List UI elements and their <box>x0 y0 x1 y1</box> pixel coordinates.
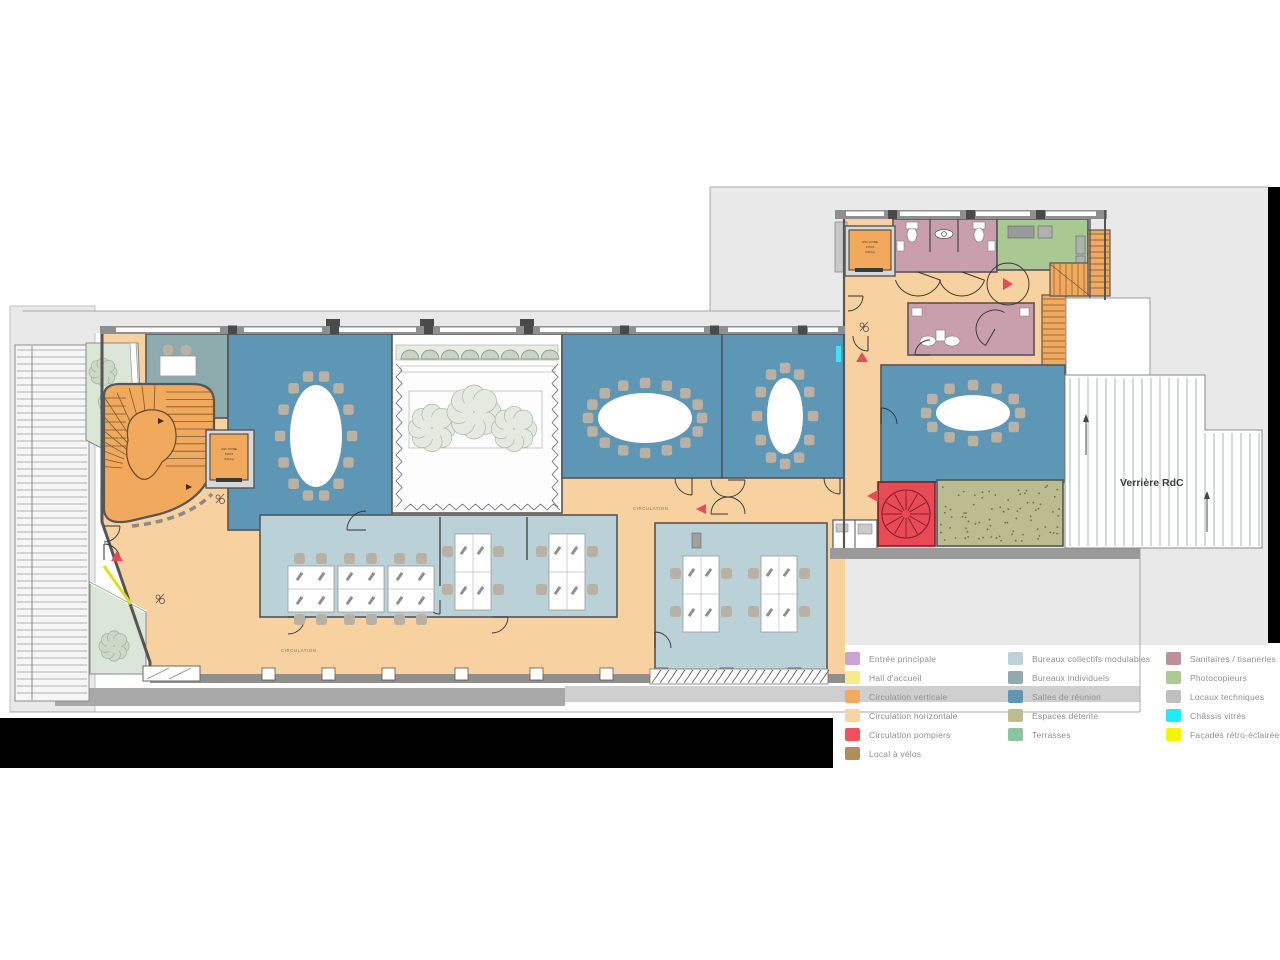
chair <box>721 568 732 579</box>
svg-text:630 kg: 630 kg <box>224 457 234 461</box>
legend-label: Bureaux collectifs modulables <box>1032 654 1150 664</box>
chair <box>536 546 547 557</box>
chair <box>303 371 314 382</box>
chair <box>670 568 681 579</box>
window-strip <box>244 328 322 333</box>
legend-item: Façades rétro-éclairées <box>1166 725 1280 744</box>
chair <box>766 369 777 380</box>
chair <box>692 426 703 437</box>
window-strip <box>540 328 612 333</box>
chair <box>275 431 286 442</box>
window-strip <box>338 328 416 333</box>
legend-label: Façades rétro-éclairées <box>1190 730 1280 740</box>
chair <box>721 606 732 617</box>
legend-color-chip <box>1008 671 1023 684</box>
legend-item: Sanitaires / tisaneries <box>1166 649 1280 668</box>
chair <box>618 380 629 391</box>
legend-color-chip <box>845 709 860 722</box>
chair <box>808 411 819 422</box>
chair <box>756 387 767 398</box>
facade-pier <box>530 668 543 680</box>
chair <box>343 457 354 468</box>
legend-item: Local à vélos <box>845 744 958 763</box>
circulation-label: CIRCULATION <box>633 506 668 511</box>
facade-pier <box>455 668 468 680</box>
chair <box>804 435 815 446</box>
legend-color-chip <box>1008 652 1023 665</box>
svg-text:630 kg: 630 kg <box>865 250 875 254</box>
facade-pier <box>382 668 395 680</box>
chair <box>319 371 330 382</box>
floor-plan: ASC KONE 8 PAX 630 kg <box>0 0 1280 960</box>
legend-item: Bureaux collectifs modulables <box>1008 649 1150 668</box>
window-strip <box>636 328 704 333</box>
legend-label: Circulation horizontale <box>869 711 958 721</box>
chair <box>316 553 327 564</box>
chair <box>756 435 767 446</box>
legend-item: Circulation pompiers <box>845 725 958 744</box>
black-bar-right <box>1268 187 1280 643</box>
chair <box>1015 408 1026 419</box>
legend-column: Sanitaires / tisaneriesPhotocopieursLoca… <box>1166 649 1280 744</box>
window-strip <box>728 328 792 333</box>
chair <box>394 614 405 625</box>
chair <box>680 438 691 449</box>
legend-label: Sanitaires / tisaneries <box>1190 654 1276 664</box>
legend-color-chip <box>845 747 860 760</box>
legend-color-chip <box>1166 671 1181 684</box>
facade-pier <box>600 668 613 680</box>
glazed-frame-mark <box>836 346 841 362</box>
legend-label: Circulation pompiers <box>869 730 950 740</box>
chair <box>442 546 453 557</box>
legend-label: Locaux techniques <box>1190 692 1264 702</box>
chair <box>692 399 703 410</box>
circulation-label: CIRCULATION <box>281 648 316 653</box>
chair <box>968 380 979 391</box>
chair <box>303 490 314 501</box>
legend-item: Entrée principale <box>845 649 958 668</box>
chair <box>804 387 815 398</box>
chair <box>366 553 377 564</box>
elevator-label: ASC KONE <box>862 240 878 244</box>
column <box>330 326 339 335</box>
column <box>710 326 719 335</box>
sink-mirror-icon <box>935 230 953 239</box>
legend-item: Photocopieurs <box>1166 668 1280 687</box>
chair <box>697 413 708 424</box>
meeting-table <box>598 393 692 443</box>
chair <box>662 380 673 391</box>
chair <box>344 553 355 564</box>
facade-pier <box>322 668 335 680</box>
legend-color-chip <box>845 728 860 741</box>
chair <box>493 546 504 557</box>
chair <box>587 584 598 595</box>
elevator-label: ASC KONE <box>221 447 237 451</box>
chair <box>344 614 355 625</box>
chair <box>394 553 405 564</box>
fire-stair <box>878 482 935 546</box>
chair <box>968 436 979 447</box>
chair <box>343 404 354 415</box>
chair <box>536 584 547 595</box>
column <box>424 326 433 335</box>
window-strip <box>440 328 516 333</box>
chair <box>794 369 805 380</box>
legend-color-chip <box>1008 690 1023 703</box>
photocopier-room <box>997 219 1088 270</box>
legend-color-chip <box>845 671 860 684</box>
legend: Entrée principaleHall d'accueilCirculati… <box>836 649 1280 767</box>
chair <box>333 478 344 489</box>
legend-color-chip <box>1166 652 1181 665</box>
legend-label: Local à vélos <box>869 749 921 759</box>
chair <box>278 457 289 468</box>
chair <box>921 408 932 419</box>
svg-text:8 PAX: 8 PAX <box>225 452 234 456</box>
chair <box>748 606 759 617</box>
chair <box>927 394 938 405</box>
legend-item: Bureaux individuels <box>1008 668 1150 687</box>
legend-item: Locaux techniques <box>1166 687 1280 706</box>
meeting-table <box>767 378 803 454</box>
chair <box>333 383 344 394</box>
chair <box>366 614 377 625</box>
chair <box>927 422 938 433</box>
column <box>620 326 629 335</box>
legend-label: Espaces détente <box>1032 711 1098 721</box>
photocopier-icon <box>1008 226 1034 238</box>
chair <box>278 404 289 415</box>
chair <box>799 568 810 579</box>
legend-color-chip <box>1008 728 1023 741</box>
meeting-table <box>290 385 342 487</box>
legend-label: Entrée principale <box>869 654 936 664</box>
chair <box>680 388 691 399</box>
legend-color-chip <box>1166 728 1181 741</box>
sanitary-block-bottom <box>908 303 1034 355</box>
chair <box>316 614 327 625</box>
chair <box>288 383 299 394</box>
floor-plan-page: ASC KONE 8 PAX 630 kg <box>0 0 1280 960</box>
chair <box>294 614 305 625</box>
chair <box>319 490 330 501</box>
column <box>228 326 237 335</box>
legend-item: Châssis vitrés <box>1166 706 1280 725</box>
chair <box>416 614 427 625</box>
chair <box>587 399 598 410</box>
chair <box>944 432 955 443</box>
legend-column: Bureaux collectifs modulablesBureaux ind… <box>1008 649 1150 744</box>
chair <box>752 411 763 422</box>
legend-color-chip <box>845 690 860 703</box>
chair <box>640 378 651 389</box>
legend-label: Salles de réunion <box>1032 692 1101 702</box>
chair <box>780 363 791 374</box>
chair <box>618 445 629 456</box>
chair <box>640 448 651 459</box>
elevator-right: ASC KONE 8 PAX 630 kg <box>845 226 895 276</box>
legend-item: Espaces détente <box>1008 706 1150 725</box>
facade-pier <box>262 668 275 680</box>
chair <box>1009 422 1020 433</box>
chair <box>766 452 777 463</box>
column <box>524 326 533 335</box>
legend-item: Hall d'accueil <box>845 668 958 687</box>
chair <box>748 568 759 579</box>
chair <box>794 452 805 463</box>
meeting-table <box>936 395 1010 431</box>
chair <box>347 431 358 442</box>
chair <box>493 584 504 595</box>
chair <box>416 553 427 564</box>
chair <box>944 384 955 395</box>
chair <box>662 445 673 456</box>
window-strip <box>808 328 838 333</box>
legend-column: Entrée principaleHall d'accueilCirculati… <box>845 649 958 763</box>
legend-label: Hall d'accueil <box>869 673 922 683</box>
window-strip <box>116 328 220 333</box>
column <box>798 326 807 335</box>
chair <box>670 606 681 617</box>
chair <box>294 553 305 564</box>
elevator-left: ASC KONE 8 PAX 630 kg <box>206 430 254 488</box>
legend-item: Circulation horizontale <box>845 706 958 725</box>
chair <box>442 584 453 595</box>
chair <box>599 388 610 399</box>
legend-label: Photocopieurs <box>1190 673 1247 683</box>
legend-label: Terrasses <box>1032 730 1071 740</box>
chair <box>991 384 1002 395</box>
sanitary-block-top <box>893 219 997 272</box>
legend-item: Terrasses <box>1008 725 1150 744</box>
chair <box>587 546 598 557</box>
legend-label: Bureaux individuels <box>1032 673 1110 683</box>
chair <box>1009 394 1020 405</box>
legend-item: Salles de réunion <box>1008 687 1150 706</box>
legend-label: Circulation verticale <box>869 692 947 702</box>
lounge-terrace <box>937 480 1063 546</box>
legend-color-chip <box>845 652 860 665</box>
legend-color-chip <box>1008 709 1023 722</box>
chair <box>799 606 810 617</box>
exterior-stair <box>15 345 89 701</box>
chair <box>288 478 299 489</box>
verriere-label: Verrière RdC <box>1120 477 1184 489</box>
chair <box>583 413 594 424</box>
chair <box>780 459 791 470</box>
legend-label: Châssis vitrés <box>1190 711 1246 721</box>
black-bar-bottom <box>0 718 833 768</box>
legend-color-chip <box>1166 709 1181 722</box>
chair <box>599 438 610 449</box>
legend-item: Circulation verticale <box>845 687 958 706</box>
chair <box>587 426 598 437</box>
open-office-b <box>655 523 827 677</box>
legend-color-chip <box>1166 690 1181 703</box>
svg-text:8 PAX: 8 PAX <box>866 245 875 249</box>
chair <box>991 432 1002 443</box>
